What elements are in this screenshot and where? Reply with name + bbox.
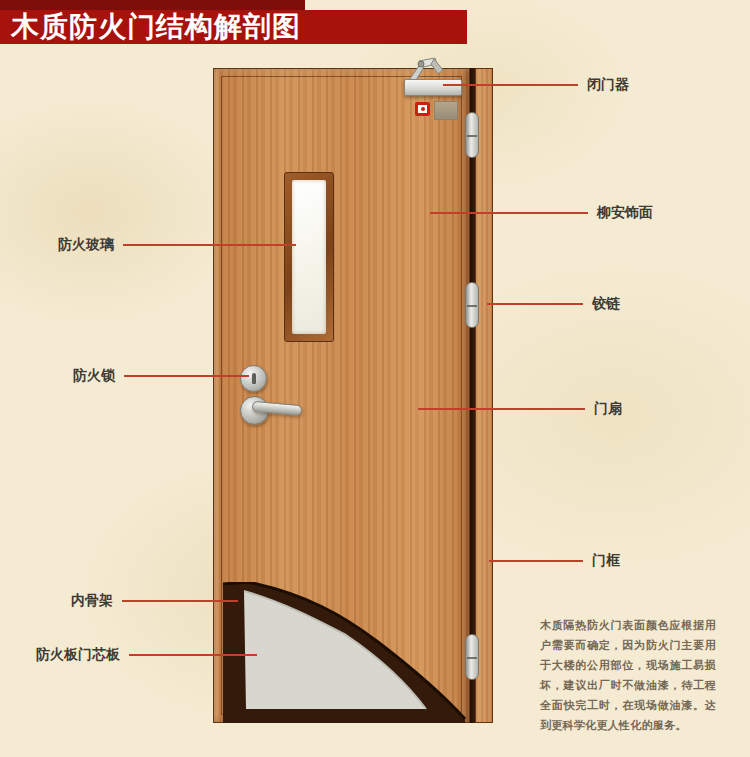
leader-line	[430, 212, 588, 214]
annotation-door-frame: 门框	[489, 552, 620, 570]
annotation-core-panel: 防火板门芯板	[36, 646, 257, 664]
annotation-hinge: 铰链	[487, 295, 620, 313]
vision-panel-bevel	[284, 172, 334, 342]
leader-line	[122, 600, 238, 602]
annotation-label: 门扇	[594, 400, 622, 418]
annotation-lauan-veneer: 柳安饰面	[430, 204, 653, 222]
metal-plate	[434, 101, 458, 120]
annotation-inner-skeleton: 内骨架	[71, 592, 238, 610]
fireproof-core-panel	[244, 591, 426, 709]
alarm-indicator	[415, 102, 430, 116]
leader-line	[123, 244, 296, 246]
annotation-label: 防火玻璃	[58, 236, 114, 254]
door-leaf	[213, 68, 470, 723]
leader-line	[443, 84, 578, 86]
annotation-door-closer: 闭门器	[443, 76, 629, 94]
hinge-top	[465, 112, 479, 158]
annotation-door-leaf: 门扇	[418, 400, 622, 418]
annotation-label: 铰链	[592, 295, 620, 313]
banner-top-strip	[0, 0, 305, 10]
page-title: 木质防火门结构解剖图	[0, 10, 467, 44]
leader-line	[129, 654, 257, 656]
infographic-canvas: 木质防火门结构解剖图	[0, 0, 750, 757]
hinge-middle	[465, 282, 479, 328]
annotation-label: 防火板门芯板	[36, 646, 120, 664]
annotation-fireproof-glass: 防火玻璃	[58, 236, 296, 254]
annotation-label: 门框	[592, 552, 620, 570]
annotation-label: 柳安饰面	[597, 204, 653, 222]
annotation-label: 防火锁	[73, 367, 115, 385]
leader-line	[418, 408, 585, 410]
annotation-label: 内骨架	[71, 592, 113, 610]
cutaway-section	[222, 582, 468, 723]
title-banner: 木质防火门结构解剖图	[0, 10, 467, 44]
leader-line	[489, 560, 583, 562]
leader-line	[487, 303, 583, 305]
annotation-fireproof-lock: 防火锁	[73, 367, 249, 385]
fireproof-glass	[292, 180, 326, 334]
product-description: 木质隔热防火门表面颜色应根据用户需要而确定，因为防火门主要用于大楼的公用部位，现…	[540, 615, 716, 735]
door-frame	[475, 68, 493, 723]
annotation-label: 闭门器	[587, 76, 629, 94]
leader-line	[124, 375, 249, 377]
hinge-bottom	[465, 634, 479, 680]
